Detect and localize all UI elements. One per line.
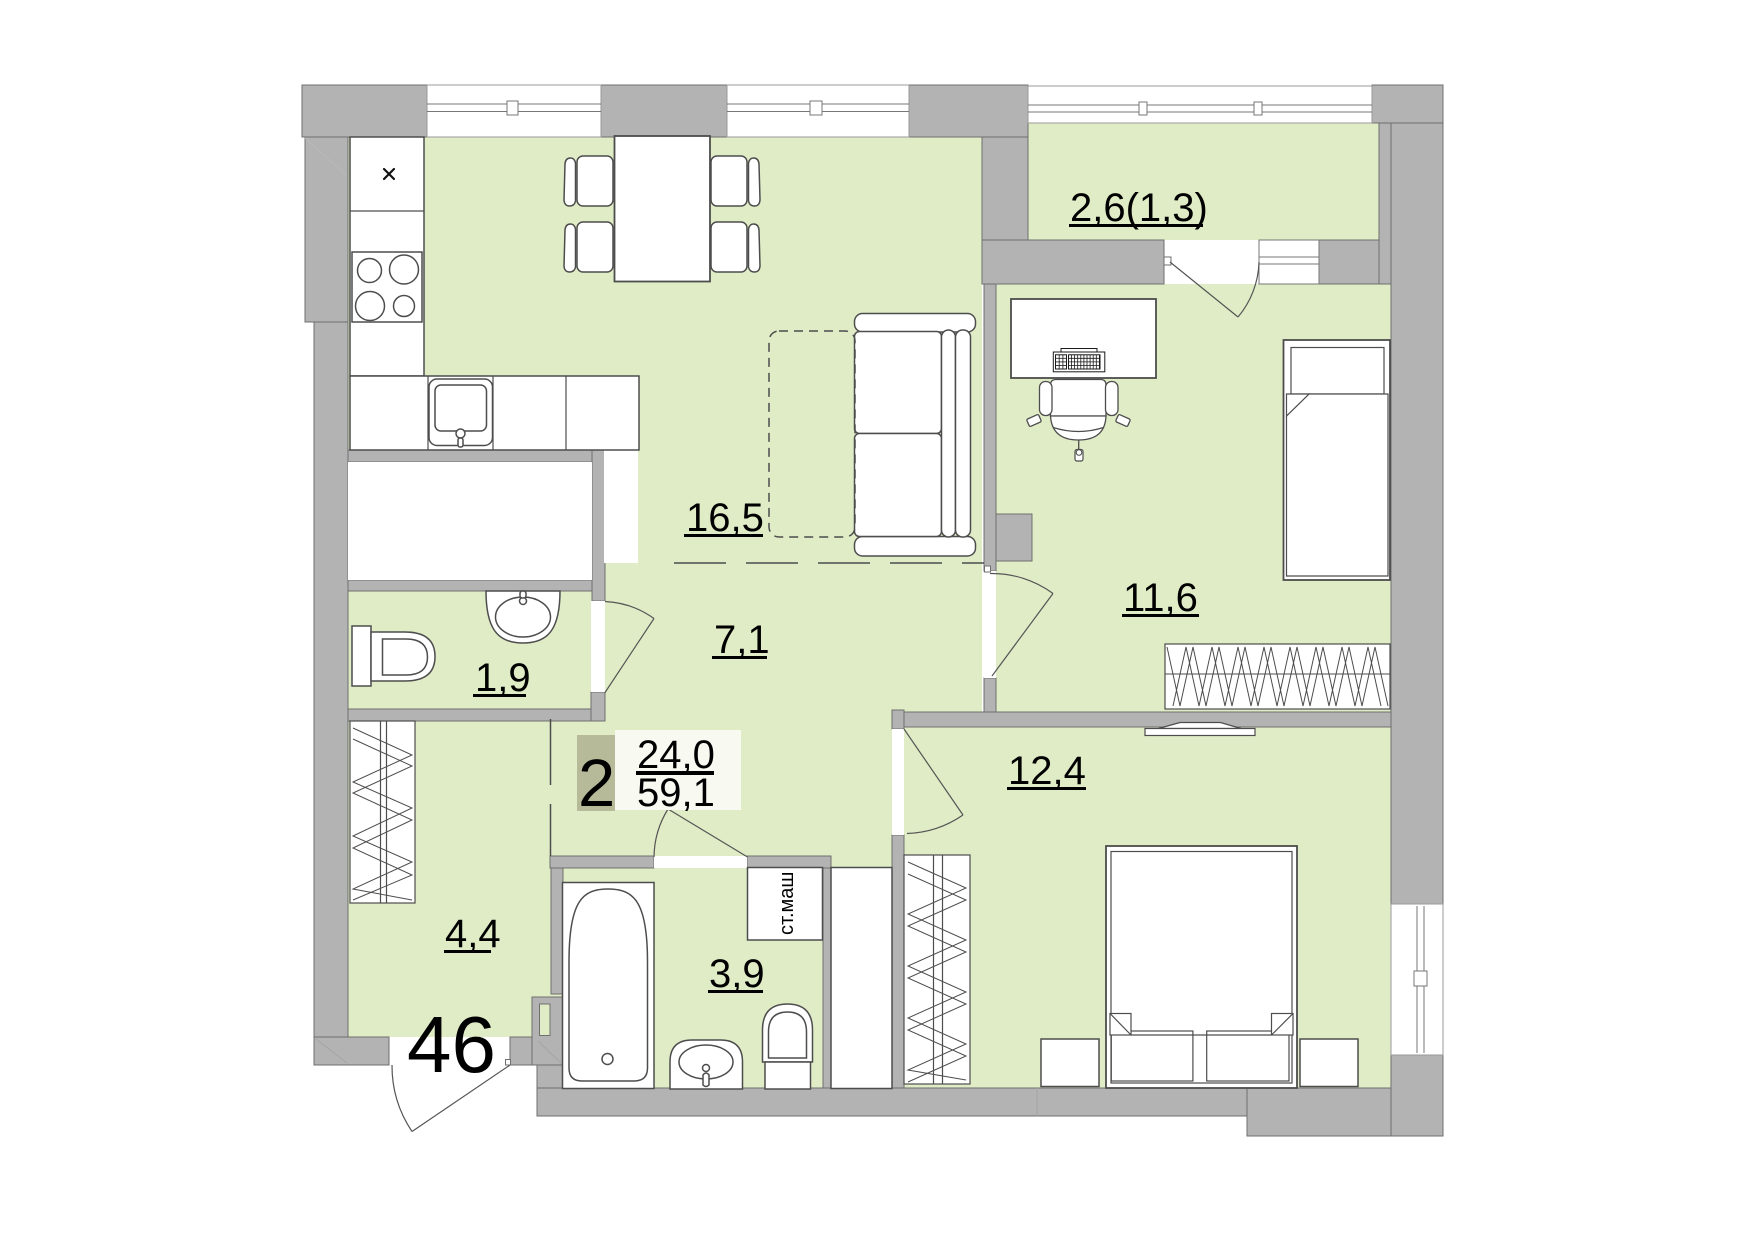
svg-text:11,6: 11,6 xyxy=(1123,576,1198,620)
svg-text:59,1: 59,1 xyxy=(637,771,715,815)
svg-text:3,9: 3,9 xyxy=(709,952,765,996)
svg-text:2,6(1,3): 2,6(1,3) xyxy=(1070,186,1208,230)
svg-text:ст.маш: ст.маш xyxy=(776,872,798,935)
svg-text:2: 2 xyxy=(578,746,615,821)
svg-text:4,4: 4,4 xyxy=(445,912,501,956)
svg-text:1,9: 1,9 xyxy=(475,656,531,700)
svg-text:46: 46 xyxy=(407,1000,496,1089)
svg-text:16,5: 16,5 xyxy=(686,496,764,540)
svg-text:7,1: 7,1 xyxy=(714,618,770,662)
svg-text:12,4: 12,4 xyxy=(1008,749,1086,793)
